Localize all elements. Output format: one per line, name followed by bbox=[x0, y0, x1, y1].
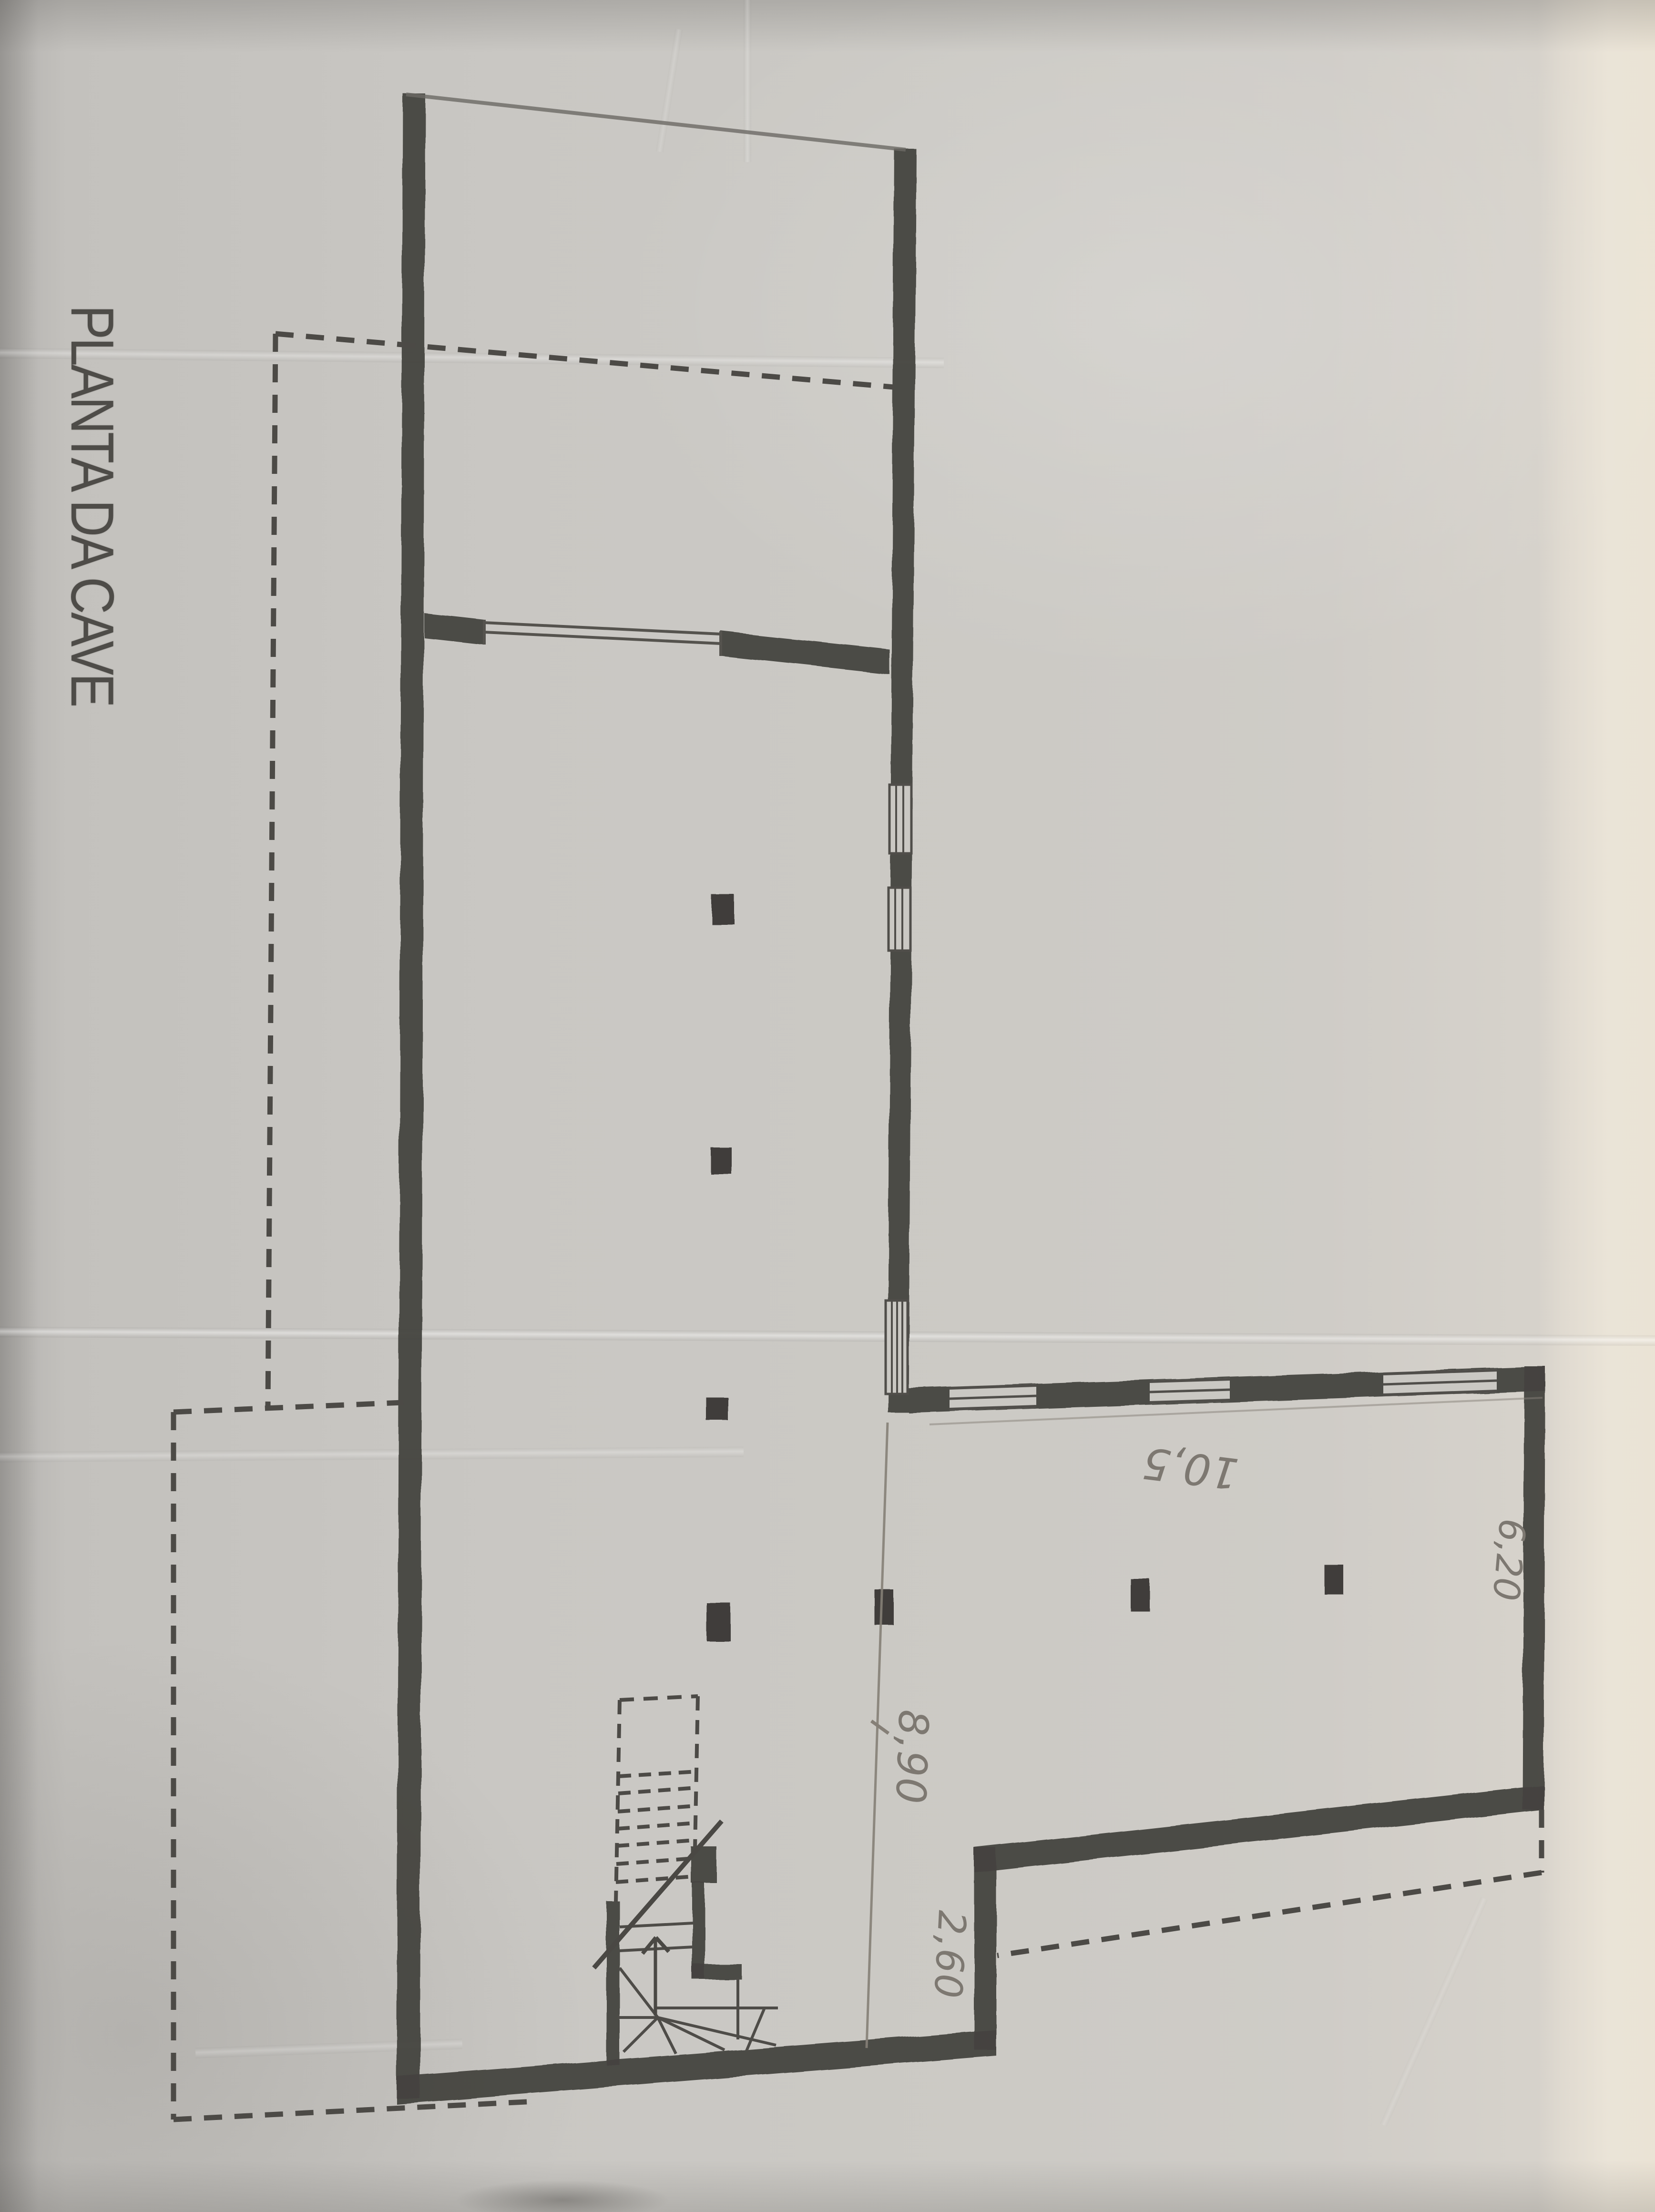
dimension-label-8-90: 8,90 bbox=[886, 1709, 937, 1806]
top-boundary-line bbox=[406, 94, 906, 150]
dashed-upper-cross bbox=[276, 334, 894, 387]
dimension-label-6-20: 6,20 bbox=[1484, 1517, 1534, 1603]
bottom-exterior-wall bbox=[397, 2030, 996, 2104]
dashed-boundary-group bbox=[174, 334, 1542, 2120]
dashed-mid-left bbox=[174, 1403, 403, 1412]
window-top-a bbox=[950, 1384, 1036, 1411]
column bbox=[706, 1603, 730, 1641]
stair-left-wall bbox=[606, 1901, 620, 2065]
window-right-1 bbox=[889, 785, 911, 853]
dashed-bottom-left bbox=[174, 2101, 535, 2120]
left-exterior-wall bbox=[397, 93, 425, 2099]
floor-plan-photo: PLANTA DA CAVE 8,90 2,60 10,5 6,20 bbox=[0, 0, 1655, 2212]
window-top-c bbox=[1383, 1369, 1497, 1396]
dashed-left-upper bbox=[268, 334, 276, 1407]
window-top-b bbox=[1150, 1378, 1230, 1404]
column bbox=[706, 1398, 728, 1421]
column bbox=[1131, 1579, 1150, 1611]
step-wall bbox=[974, 1848, 996, 2050]
plan-title: PLANTA DA CAVE bbox=[58, 305, 128, 706]
stair-landing-wall bbox=[692, 1964, 742, 1979]
window-group bbox=[886, 785, 1497, 1411]
right-wall-upper bbox=[888, 149, 916, 1412]
dim-line-vertical bbox=[867, 1423, 888, 2048]
stairwell-dashed-outline bbox=[616, 1696, 698, 1902]
dashed-corner-right-h bbox=[997, 1873, 1542, 1956]
thin-line-group bbox=[406, 94, 906, 656]
window-right-3 bbox=[886, 1301, 908, 1394]
dim-tick bbox=[871, 1721, 889, 1733]
window-right-2 bbox=[889, 888, 910, 951]
floor-plan-drawing bbox=[0, 0, 1655, 2212]
dimension-label-10-5: 10,5 bbox=[1150, 1436, 1241, 1500]
big-room-bottom-wall bbox=[974, 1785, 1543, 1873]
staircase bbox=[594, 1696, 778, 2054]
wall-group bbox=[397, 93, 1545, 2104]
column bbox=[875, 1590, 894, 1626]
interior-wall-right-segment bbox=[721, 631, 889, 674]
column-group bbox=[706, 894, 1343, 1641]
interior-opening-glazing bbox=[484, 620, 721, 656]
column bbox=[710, 1147, 731, 1174]
column bbox=[1324, 1565, 1343, 1594]
column bbox=[711, 894, 734, 924]
dimension-label-2-60: 2,60 bbox=[925, 1909, 974, 2000]
stair-right-wall bbox=[692, 1882, 705, 1978]
interior-wall-left-segment bbox=[424, 613, 484, 645]
